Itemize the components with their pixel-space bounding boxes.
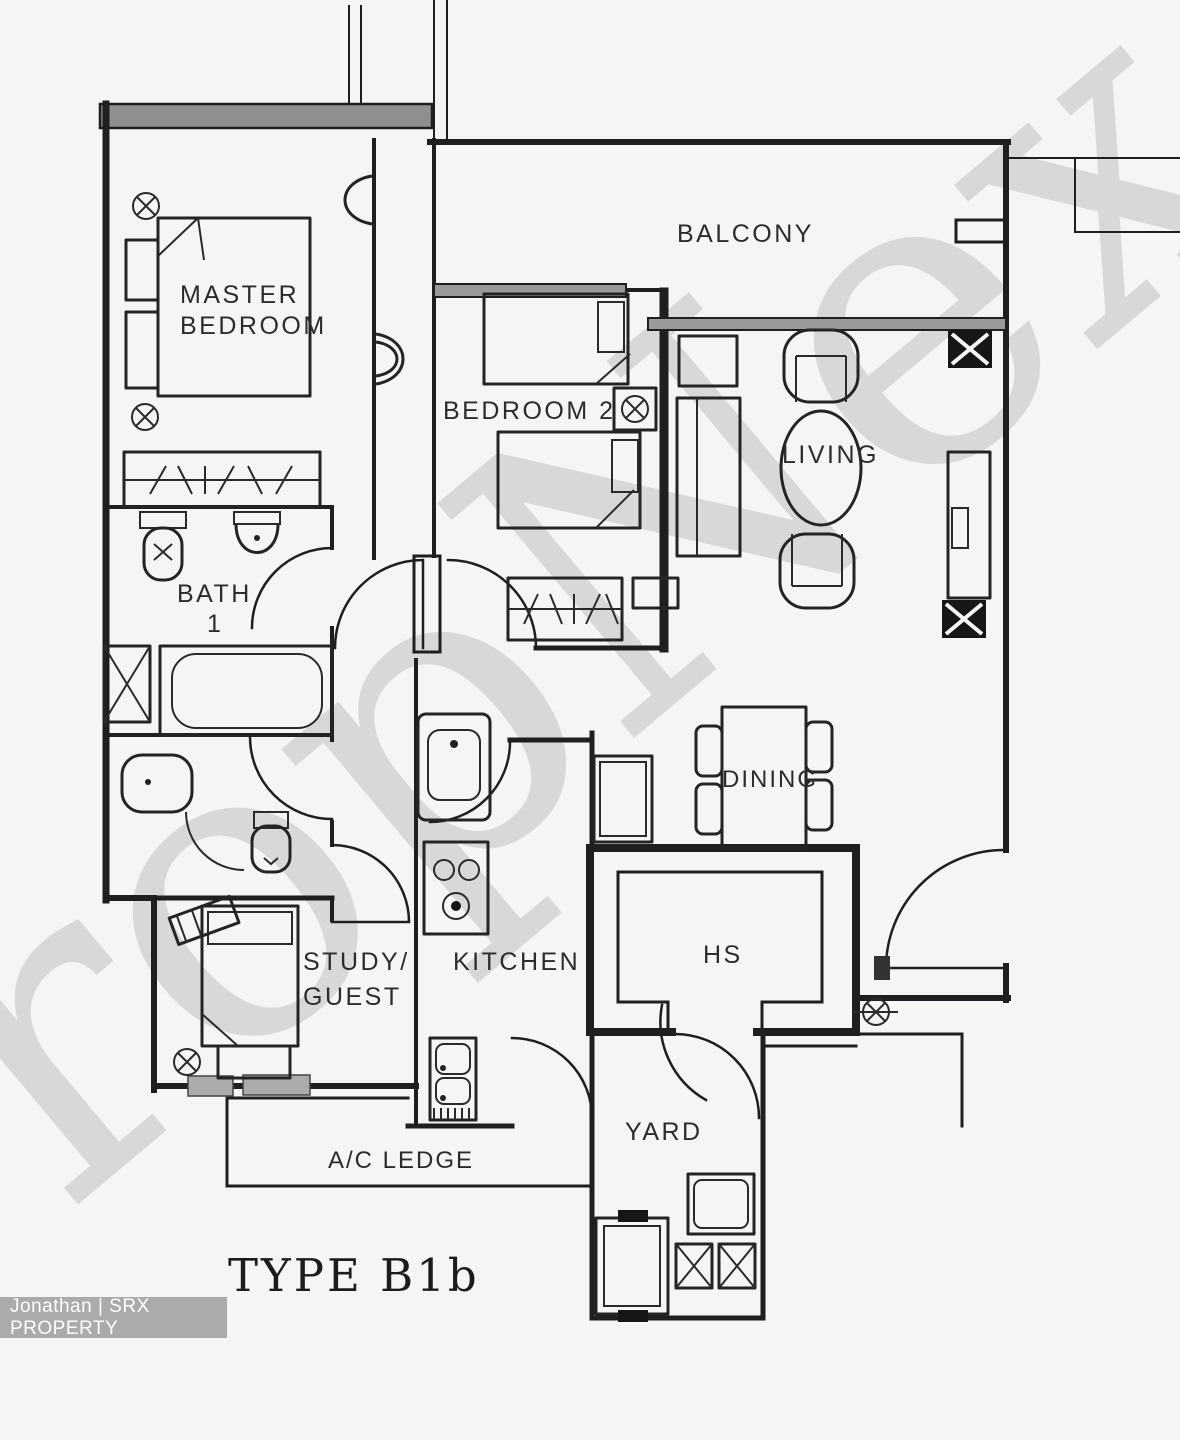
entrance-door-jamb — [874, 956, 890, 980]
room-label-hs: HS — [703, 941, 743, 969]
column-marker-icon — [948, 330, 992, 368]
room-label-kitchen: KITCHEN — [453, 948, 580, 976]
column-marker-icon — [942, 600, 986, 638]
door-arc-entrance — [886, 850, 1004, 968]
shaft-x-icon — [719, 1244, 755, 1288]
credit-badge-text: Jonathan | SRX PROPERTY — [10, 1296, 227, 1340]
room-label-bath1-2: 1 — [207, 610, 223, 638]
credit-badge: Jonathan | SRX PROPERTY — [0, 1297, 227, 1338]
door-arc-yard — [675, 1034, 759, 1118]
shaft-x-icon — [676, 1244, 712, 1288]
room-label-yard: YARD — [625, 1118, 703, 1146]
light-point-icon — [854, 999, 898, 1025]
vanity-basin-icon — [376, 334, 403, 384]
light-point-icon — [133, 193, 159, 219]
vanity-basin-icon — [345, 176, 372, 224]
door-arc-kitchen-yard — [512, 1038, 592, 1118]
utility-box — [596, 1218, 668, 1314]
washing-machine-icon — [688, 1174, 754, 1234]
room-label-master-1: MASTER — [180, 281, 299, 309]
plan-type-title: TYPE B1b — [228, 1249, 480, 1302]
room-label-study-2: GUEST — [303, 983, 402, 1011]
room-label-dining: DINING — [722, 766, 818, 793]
room-label-bedroom2: BEDROOM 2 — [443, 397, 616, 425]
room-label-study-1: STUDY/ — [303, 948, 410, 976]
room-label-living: LIVING — [782, 441, 879, 469]
room-label-ac-ledge: A/C LEDGE — [328, 1147, 474, 1174]
room-label-bath1-1: BATH — [177, 580, 252, 608]
window-band-master — [100, 104, 432, 128]
floor-plan-page: PropNex — [0, 0, 1180, 1440]
window-band-living — [648, 318, 1006, 330]
master-wardrobe — [124, 452, 320, 507]
room-label-master-2: BEDROOM — [180, 312, 327, 340]
room-label-balcony: BALCONY — [677, 220, 814, 248]
floor-plan-drawing: PropNex — [0, 0, 1180, 1440]
light-point-icon — [132, 404, 158, 430]
